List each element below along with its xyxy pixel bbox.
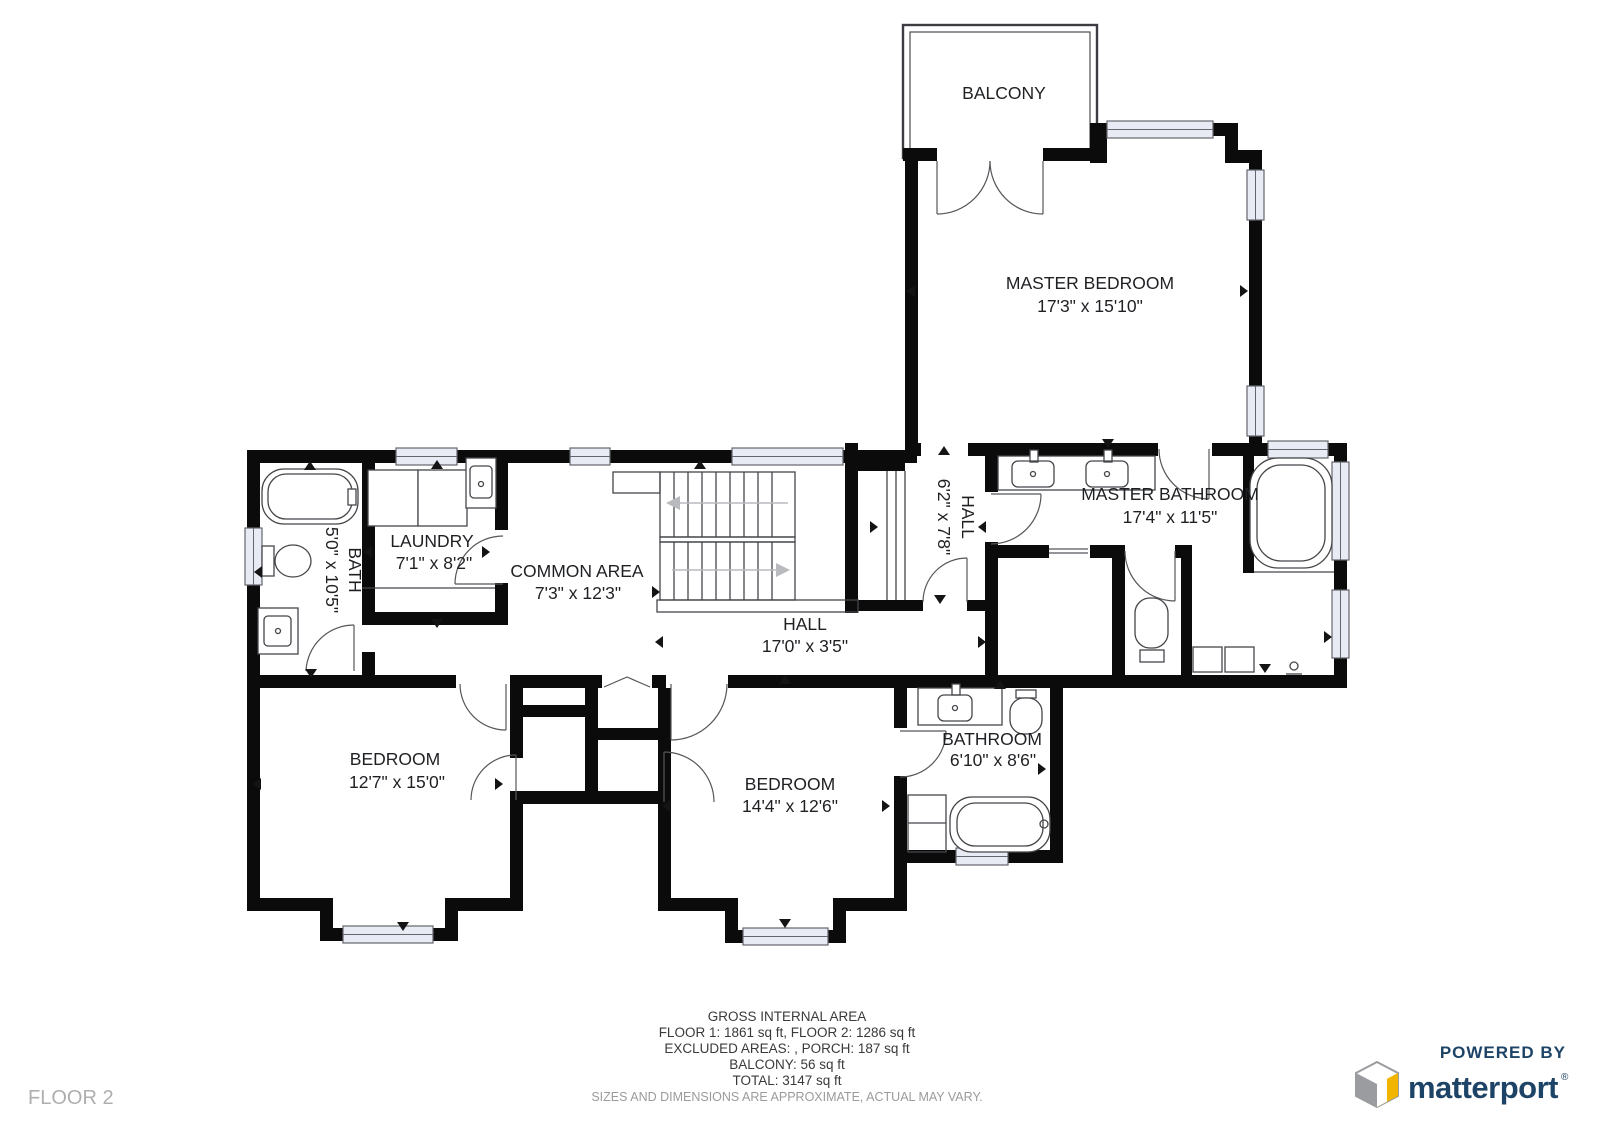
label-bath: BATH 5'0" x 10'5" <box>322 527 365 613</box>
registered-mark: ® <box>1561 1072 1569 1083</box>
svg-text:MASTER BEDROOM: MASTER BEDROOM <box>1006 273 1174 293</box>
door-closet-right <box>664 752 714 802</box>
toilet-icon <box>262 545 311 577</box>
svg-text:HALL: HALL <box>958 495 978 539</box>
bathroom-toilet-icon <box>1010 690 1042 734</box>
label-common-area: COMMON AREA 7'3" x 12'3" <box>510 561 644 603</box>
svg-text:7'1" x 8'2": 7'1" x 8'2" <box>396 553 473 573</box>
summary-excluded: EXCLUDED AREAS: , PORCH: 187 sq ft <box>664 1041 910 1056</box>
label-bedroom-left: BEDROOM 12'7" x 15'0" <box>349 749 445 792</box>
door-bathroom <box>900 731 946 777</box>
svg-text:BATHROOM: BATHROOM <box>942 729 1042 749</box>
door-bedroom-right <box>671 684 727 740</box>
label-laundry: LAUNDRY 7'1" x 8'2" <box>390 531 474 573</box>
dimension-markers <box>253 285 1332 931</box>
svg-text:COMMON AREA: COMMON AREA <box>510 561 644 581</box>
pocket-door <box>1049 549 1088 553</box>
svg-text:17'0" x 3'5": 17'0" x 3'5" <box>762 636 848 656</box>
svg-text:5'0" x 10'5": 5'0" x 10'5" <box>322 527 342 613</box>
room-labels: MASTER BEDROOM 17'3" x 15'10" MASTER BAT… <box>322 273 1259 816</box>
matterport-wordmark: matterport <box>1408 1070 1558 1105</box>
door-wc <box>1125 551 1175 601</box>
svg-text:6'10" x 8'6": 6'10" x 8'6" <box>950 750 1036 770</box>
label-master-bedroom: MASTER BEDROOM 17'3" x 15'10" <box>1006 273 1174 316</box>
bathroom-tub-icon <box>950 797 1050 852</box>
linen-closet-icon <box>908 795 946 852</box>
svg-text:BEDROOM: BEDROOM <box>745 774 835 794</box>
svg-text:6'2" x 7'8": 6'2" x 7'8" <box>934 479 954 556</box>
shower-cabinet-icon <box>1193 647 1302 674</box>
french-doors <box>937 161 1043 214</box>
wc-toilet-icon <box>1135 598 1168 662</box>
floor-plan-canvas: BALCONY <box>0 0 1600 1131</box>
svg-text:HALL: HALL <box>783 614 827 634</box>
svg-text:7'3" x 12'3": 7'3" x 12'3" <box>535 583 621 603</box>
matterport-branding: POWERED BY matterport ® <box>1356 1043 1569 1107</box>
summary-balcony: BALCONY: 56 sq ft <box>729 1057 845 1072</box>
label-bedroom-right: BEDROOM 14'4" x 12'6" <box>742 774 838 816</box>
door-hall-master-bathroom <box>991 494 1041 544</box>
balcony-label: BALCONY <box>962 83 1046 103</box>
door-bath <box>306 625 354 671</box>
matterport-cube-icon <box>1356 1062 1398 1107</box>
summary-disclaimer: SIZES AND DIMENSIONS ARE APPROXIMATE, AC… <box>591 1090 982 1104</box>
svg-text:14'4" x 12'6": 14'4" x 12'6" <box>742 796 838 816</box>
svg-text:LAUNDRY: LAUNDRY <box>390 531 474 551</box>
powered-by-text: POWERED BY <box>1440 1043 1566 1062</box>
door-bedroom-left <box>460 684 506 730</box>
label-hall-upper: HALL 6'2" x 7'8" <box>934 479 978 556</box>
svg-text:BEDROOM: BEDROOM <box>350 749 440 769</box>
summary-total: TOTAL: 3147 sq ft <box>732 1073 841 1088</box>
label-master-bathroom: MASTER BATHROOM 17'4" x 11'5" <box>1081 484 1259 527</box>
area-summary: GROSS INTERNAL AREA FLOOR 1: 1861 sq ft,… <box>591 1009 982 1104</box>
svg-text:12'7" x 15'0": 12'7" x 15'0" <box>349 772 445 792</box>
stairs-up-arrow <box>666 496 680 510</box>
door-openings <box>456 148 1212 688</box>
label-bathroom: BATHROOM 6'10" x 8'6" <box>942 729 1042 770</box>
door-closet-left <box>471 755 516 800</box>
summary-floors: FLOOR 1: 1861 sq ft, FLOOR 2: 1286 sq ft <box>659 1025 916 1040</box>
sink-icon <box>258 608 298 654</box>
svg-text:BATH: BATH <box>345 547 365 592</box>
balcony: BALCONY <box>903 25 1097 158</box>
svg-text:MASTER BATHROOM: MASTER BATHROOM <box>1081 484 1259 504</box>
floor-label: FLOOR 2 <box>28 1087 114 1109</box>
svg-text:17'4" x 11'5": 17'4" x 11'5" <box>1123 507 1218 527</box>
svg-text:17'3" x 15'10": 17'3" x 15'10" <box>1037 296 1143 316</box>
stairs-down-arrow <box>776 563 790 577</box>
bathroom-vanity-icon <box>918 684 1002 725</box>
label-hall: HALL 17'0" x 3'5" <box>762 614 848 656</box>
bathtub-icon <box>262 469 358 524</box>
laundry-sink-icon <box>466 458 496 508</box>
summary-title: GROSS INTERNAL AREA <box>708 1009 867 1024</box>
master-tub-icon <box>1250 458 1334 572</box>
